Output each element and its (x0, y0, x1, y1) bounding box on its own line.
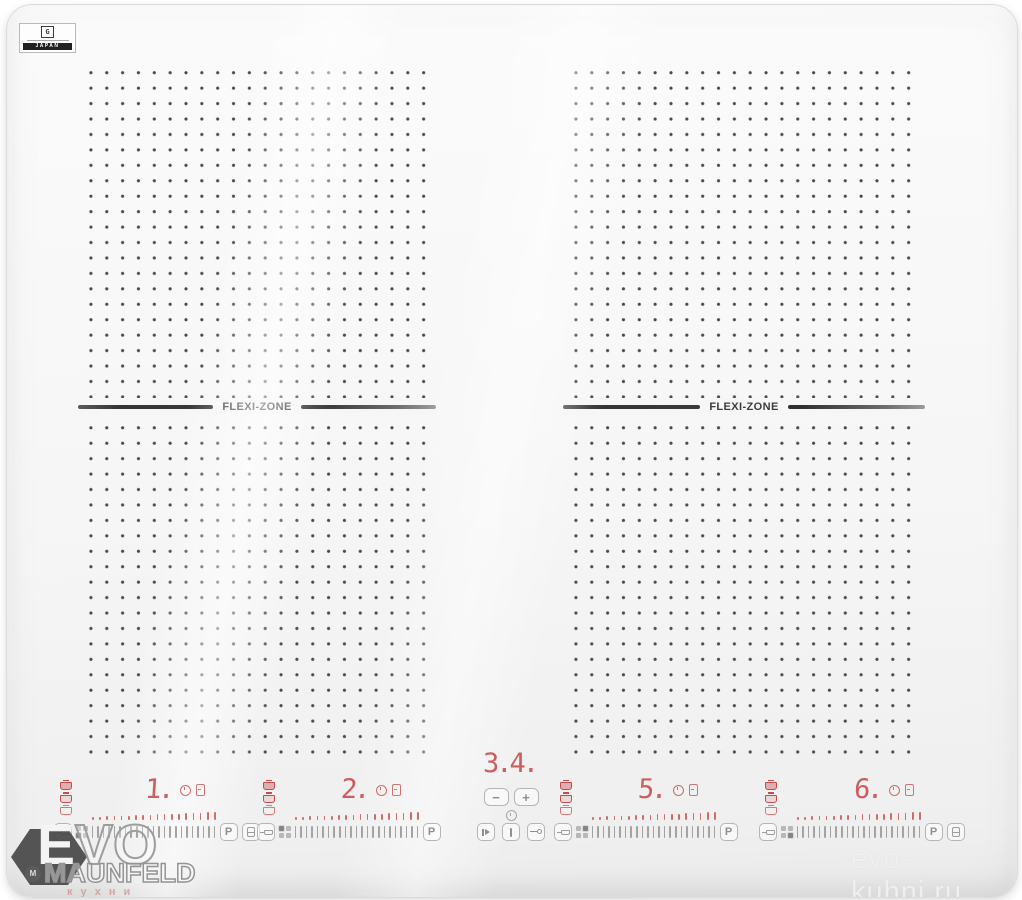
tick-mark (311, 826, 313, 838)
cooking-field-right: FLEXI-ZONE (566, 63, 922, 760)
tick-mark (797, 826, 799, 838)
zone-1-booster-button[interactable]: P (220, 823, 238, 841)
tick-mark (625, 826, 627, 838)
tick-mark (693, 813, 695, 820)
tick-mark (826, 816, 828, 820)
tick-mark (708, 826, 710, 838)
tick-mark (114, 816, 116, 820)
tick-mark (707, 812, 709, 820)
tick-mark (378, 826, 380, 838)
position-dot (279, 826, 284, 831)
tick-mark (106, 816, 108, 820)
position-dot (788, 826, 793, 831)
flexi-zone-label: FLEXI-ZONE (709, 401, 778, 413)
tick-mark (675, 826, 677, 838)
tick-mark (350, 826, 352, 838)
tick-mark (855, 815, 857, 820)
child-lock-button[interactable] (527, 823, 545, 841)
tick-mark (388, 813, 390, 820)
position-dot (83, 826, 88, 831)
melt-preset-icon (560, 807, 572, 815)
zone-timer-clock-icon (376, 785, 387, 796)
tick-mark (367, 826, 369, 838)
zone-5-controls: 5. P (550, 776, 746, 844)
tick-mark (686, 826, 688, 838)
tick-mark (192, 826, 194, 838)
zone-6-power-slider[interactable] (797, 823, 921, 841)
position-dot (279, 833, 284, 838)
tick-mark (880, 826, 882, 838)
tick-mark (897, 826, 899, 838)
timer-display: 3.4. (463, 752, 559, 777)
zone-2-select-button[interactable] (257, 823, 275, 841)
pan-icon (766, 830, 775, 835)
tick-mark (331, 816, 333, 821)
tick-mark (130, 826, 132, 838)
tick-mark (902, 826, 904, 838)
zone-6-select-button[interactable] (759, 823, 777, 841)
position-dot (286, 826, 291, 831)
tick-mark (700, 813, 702, 820)
zone-1-level-scale (92, 811, 216, 820)
tick-mark (207, 812, 209, 820)
tick-mark (300, 826, 302, 838)
zone-5-level-scale (592, 811, 716, 820)
tick-mark (384, 826, 386, 838)
position-dot (576, 826, 581, 831)
flexi-line (301, 405, 436, 409)
tick-mark (697, 826, 699, 838)
japan-label: JAPAN (23, 43, 72, 50)
tick-mark (592, 817, 594, 820)
flexi-zone-marking-right: FLEXI-ZONE (563, 398, 925, 415)
melt-preset-icon (60, 807, 72, 815)
tick-mark (185, 813, 187, 820)
tick-mark (164, 814, 166, 820)
tick-mark (306, 826, 308, 838)
tick-mark (372, 826, 374, 838)
tick-mark (353, 815, 355, 820)
maunfeld-logo-icon: M (25, 866, 41, 882)
tick-mark (169, 826, 171, 838)
tick-mark (647, 826, 649, 838)
zone-timer-digit-icon (905, 784, 914, 796)
zone-5-power-level: 5. (637, 778, 668, 802)
zone-1-controls: 1. P (50, 776, 260, 844)
zone-2-controls: 2. P (253, 776, 449, 844)
tick-mark (147, 826, 149, 838)
tick-mark (361, 826, 363, 838)
zone-2-booster-button[interactable]: P (423, 823, 441, 841)
tick-mark (328, 826, 330, 838)
tick-mark (908, 826, 910, 838)
tick-mark (650, 815, 652, 820)
zone-5-power-slider[interactable] (592, 823, 716, 841)
tick-mark (813, 826, 815, 838)
tick-mark (657, 814, 659, 820)
position-dot (286, 833, 291, 838)
tick-mark (603, 826, 605, 838)
zone-2-level-scale (295, 811, 419, 820)
pause-resume-button[interactable] (477, 823, 495, 841)
tick-mark (136, 826, 138, 838)
tick-mark (664, 814, 666, 820)
tick-mark (919, 812, 921, 820)
tick-mark (164, 826, 166, 838)
glass-maker-logo-icon: G (41, 26, 54, 38)
tick-mark (381, 814, 383, 821)
japan-quality-badge: G JAPAN (19, 23, 76, 53)
tick-mark (396, 813, 398, 820)
tick-mark (200, 813, 202, 820)
tick-mark (669, 826, 671, 838)
tick-mark (808, 826, 810, 838)
tick-mark (360, 814, 362, 820)
zone-1-position-indicator (76, 826, 88, 838)
tick-mark (114, 826, 116, 838)
tick-mark (157, 814, 159, 820)
tick-mark (852, 826, 854, 838)
tick-mark (175, 826, 177, 838)
position-dot (781, 833, 786, 838)
zone-timer-digit-icon (196, 784, 205, 796)
zone-timer-clock-icon (180, 785, 191, 796)
tick-mark (703, 826, 705, 838)
tick-mark (658, 826, 660, 838)
tick-mark (819, 816, 821, 820)
tick-mark (403, 813, 405, 820)
tick-mark (345, 815, 347, 820)
flexi-line (78, 405, 213, 409)
tick-mark (128, 816, 130, 821)
tick-mark (858, 826, 860, 838)
flexi-line (563, 405, 700, 409)
tick-mark (295, 826, 297, 838)
tick-mark (714, 826, 716, 838)
tick-mark (410, 812, 412, 820)
tick-mark (597, 826, 599, 838)
tick-mark (681, 826, 683, 838)
tick-mark (317, 826, 319, 838)
tick-mark (797, 817, 799, 820)
pause-play-icon (482, 829, 490, 836)
tick-mark (345, 826, 347, 838)
position-dot (583, 833, 588, 838)
tick-mark (97, 826, 99, 838)
tick-mark (714, 812, 716, 820)
tick-mark (92, 826, 94, 838)
tick-mark (142, 815, 144, 820)
tick-mark (178, 814, 180, 821)
zone-1-power-level: 1. (144, 778, 175, 802)
tick-mark (295, 817, 297, 820)
timer-controls: 3.4. − + (463, 752, 559, 846)
zone-5-display: 5. (570, 778, 766, 802)
tick-mark (898, 813, 900, 820)
zone-1-select-button[interactable] (54, 823, 72, 841)
melt-preset-icon (765, 807, 777, 815)
tick-mark (833, 816, 835, 821)
position-dot (83, 833, 88, 838)
zone-timer-clock-icon (889, 785, 900, 796)
tick-mark (664, 826, 666, 838)
power-icon (510, 828, 512, 837)
position-dot (76, 833, 81, 838)
position-dot (781, 826, 786, 831)
zone-timer-digit-icon (689, 784, 698, 796)
tick-mark (599, 817, 601, 820)
pan-icon (561, 830, 570, 835)
maunfeld-brand-text: MAUNFELD (44, 858, 195, 889)
key-lock-icon (530, 828, 542, 837)
tick-mark (153, 826, 155, 838)
zone-6-position-indicator (781, 826, 793, 838)
tick-mark (890, 813, 892, 820)
tick-mark (835, 826, 837, 838)
tick-mark (811, 816, 813, 820)
position-dot (788, 833, 793, 838)
position-dot (576, 833, 581, 838)
tick-mark (400, 826, 402, 838)
tick-mark (193, 813, 195, 820)
zone-6-bridge-button[interactable] (947, 823, 965, 841)
zone-timer-clock-icon (673, 785, 684, 796)
tick-mark (214, 826, 216, 838)
tick-mark (630, 826, 632, 838)
tick-mark (99, 817, 101, 820)
tick-mark (863, 826, 865, 838)
tick-mark (621, 816, 623, 820)
tick-mark (847, 815, 849, 820)
tick-mark (417, 826, 419, 838)
tick-mark (905, 813, 907, 820)
tick-mark (912, 812, 914, 820)
tick-mark (642, 826, 644, 838)
tick-mark (367, 814, 369, 820)
tick-mark (642, 815, 644, 820)
zone-5-booster-button[interactable]: P (720, 823, 738, 841)
timer-value: 3.4. (483, 748, 539, 779)
tick-mark (135, 815, 137, 820)
tick-mark (171, 814, 173, 820)
tick-mark (841, 826, 843, 838)
tick-mark (395, 826, 397, 838)
tick-mark (338, 815, 340, 820)
site-watermark: evo-kuhni.ru (851, 843, 1017, 898)
timer-minus-button[interactable]: − (484, 788, 509, 806)
zone-2-power-level: 2. (340, 778, 371, 802)
tick-mark (830, 826, 832, 838)
tick-mark (411, 826, 413, 838)
zone-5-position-indicator (576, 826, 588, 838)
tick-mark (891, 826, 893, 838)
tick-mark (678, 814, 680, 821)
tick-mark (181, 826, 183, 838)
flexi-line (788, 405, 925, 409)
timer-clock-icon (506, 810, 517, 821)
tick-mark (614, 816, 616, 820)
tick-mark (802, 826, 804, 838)
tick-mark (203, 826, 205, 838)
zone-1-power-slider[interactable] (92, 823, 216, 841)
tick-mark (302, 817, 304, 820)
tick-mark (847, 826, 849, 838)
cooking-field-left: FLEXI-ZONE (81, 63, 433, 760)
zone-timer-digit-icon (392, 784, 401, 796)
tick-mark (862, 814, 864, 820)
tick-mark (840, 815, 842, 820)
tick-mark (356, 826, 358, 838)
tick-mark (309, 816, 311, 820)
tick-mark (883, 814, 885, 821)
tick-mark (186, 826, 188, 838)
flexi-zone-marking-left: FLEXI-ZONE (78, 398, 436, 415)
zone-2-position-indicator (279, 826, 291, 838)
tick-mark (692, 826, 694, 838)
tick-mark (150, 815, 152, 820)
tick-mark (619, 826, 621, 838)
zone-2-power-slider[interactable] (295, 823, 419, 841)
tick-mark (869, 826, 871, 838)
tick-mark (876, 814, 878, 820)
tick-mark (636, 826, 638, 838)
tick-mark (417, 812, 419, 820)
tick-mark (389, 826, 391, 838)
tick-mark (406, 826, 408, 838)
badge-fine-print (27, 40, 69, 41)
melt-preset-icon (263, 807, 275, 815)
flexi-zone-label: FLEXI-ZONE (222, 401, 291, 413)
bridge-zones-icon (952, 827, 960, 837)
tick-mark (103, 826, 105, 838)
tick-mark (614, 826, 616, 838)
tick-mark (158, 826, 160, 838)
tick-mark (869, 814, 871, 820)
tick-mark (592, 826, 594, 838)
tick-mark (121, 816, 123, 820)
tick-mark (197, 826, 199, 838)
tick-mark (324, 816, 326, 820)
tick-mark (333, 826, 335, 838)
kuhni-subtitle: кухни (67, 886, 138, 898)
tick-mark (92, 817, 94, 820)
tick-mark (214, 812, 216, 820)
tick-mark (125, 826, 127, 838)
tick-mark (819, 826, 821, 838)
tick-mark (374, 814, 376, 820)
tick-mark (208, 826, 210, 838)
power-on-off-button[interactable] (502, 823, 520, 841)
timer-plus-button[interactable]: + (514, 788, 539, 806)
tick-mark (804, 817, 806, 820)
zone-6-controls: 6. P (755, 776, 973, 844)
zone-1-display: 1. (70, 778, 280, 802)
tick-mark (108, 826, 110, 838)
tick-mark (608, 826, 610, 838)
zone-6-booster-button[interactable]: P (925, 823, 943, 841)
tick-mark (635, 815, 637, 820)
tick-mark (317, 816, 319, 820)
zone-6-power-level: 6. (853, 778, 884, 802)
tick-mark (919, 826, 921, 838)
zone-2-display: 2. (273, 778, 469, 802)
tick-mark (653, 826, 655, 838)
tick-mark (886, 826, 888, 838)
tick-mark (671, 814, 673, 820)
position-dot (583, 826, 588, 831)
pan-icon (61, 830, 70, 835)
zone-5-select-button[interactable] (554, 823, 572, 841)
tick-mark (628, 816, 630, 821)
tick-mark (142, 826, 144, 838)
zone-6-display: 6. (775, 778, 993, 802)
tick-mark (874, 826, 876, 838)
position-dot (76, 826, 81, 831)
pan-icon (264, 830, 273, 835)
cooktop-surface: G JAPAN FLEXI-ZONE FLEXI-ZONE (6, 4, 1018, 898)
tick-mark (913, 826, 915, 838)
tick-mark (606, 816, 608, 820)
tick-mark (339, 826, 341, 838)
product-photo: G JAPAN FLEXI-ZONE FLEXI-ZONE (0, 0, 1022, 900)
tick-mark (685, 813, 687, 820)
tick-mark (322, 826, 324, 838)
tick-mark (824, 826, 826, 838)
zone-6-level-scale (797, 811, 921, 820)
tick-mark (119, 826, 121, 838)
